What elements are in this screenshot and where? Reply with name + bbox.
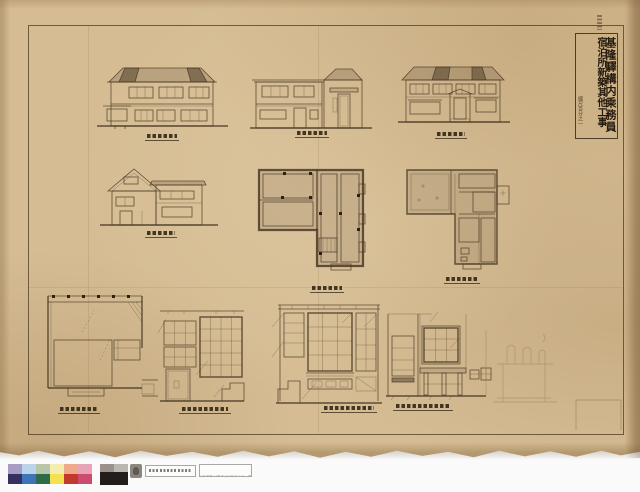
color-swatch [22, 474, 36, 484]
faint-rectangle-sketch [575, 398, 622, 430]
color-swatch [22, 464, 36, 474]
color-calibration-row-top [8, 464, 92, 474]
scanned-drawing-page: 基隆驛構内乘務員 宿泊所新築其他工事 縮尺百分之一 [0, 0, 640, 492]
second-floor-plan-drawing [403, 160, 517, 270]
interior-elevation-c-drawing [380, 308, 492, 406]
rear-elevation-drawing [398, 64, 510, 126]
caption-side-elevation [297, 131, 327, 135]
color-swatch [64, 464, 78, 474]
color-swatch [50, 464, 64, 474]
color-swatch [114, 464, 128, 472]
color-calibration-row-bottom [8, 474, 92, 484]
title-column-left: 宿泊所新築其他工事 [595, 37, 605, 136]
first-floor-plan-drawing [253, 164, 369, 272]
title-column-right: 基隆驛構内乘務員 [605, 37, 616, 136]
caption-second-floor-plan [446, 277, 478, 281]
front-elevation-drawing [95, 62, 230, 134]
color-swatch [50, 474, 64, 484]
pencil-furniture-sketch [483, 328, 563, 413]
side-elevation-drawing [250, 66, 372, 134]
caption-bath-detail [60, 407, 98, 411]
project-label-box: 基隆驛構内乘務員宿泊所新築其他工事 [199, 464, 252, 477]
gable-end-elevation-drawing [100, 165, 218, 229]
interior-elevation-b-drawing [272, 297, 386, 409]
black-calibration-swatch [100, 472, 128, 485]
caption-gable-elevation [147, 231, 175, 235]
archive-stamp-icon [130, 464, 142, 478]
reference-number-box [145, 465, 196, 477]
color-swatch [100, 464, 114, 472]
color-swatch [78, 474, 92, 484]
caption-interior-c [396, 404, 450, 408]
color-swatch [64, 474, 78, 484]
project-label-text: 基隆驛構内乘務員宿泊所新築其他工事 [200, 474, 251, 477]
color-swatch [36, 464, 50, 474]
paper-right-edge [626, 0, 640, 458]
reference-number-marks [149, 469, 192, 472]
caption-first-floor-plan [312, 286, 342, 290]
color-swatch [78, 464, 92, 474]
caption-interior-b [324, 406, 374, 410]
caption-rear-elevation [437, 132, 465, 136]
color-swatch [8, 464, 22, 474]
bath-detail-plan-drawing [42, 288, 160, 406]
caption-interior-a [182, 407, 228, 411]
classification-mark [597, 15, 602, 30]
interior-elevation-a-drawing [156, 305, 248, 408]
scale-note: 縮尺百分之一 [577, 96, 582, 126]
color-swatch [8, 474, 22, 484]
caption-front-elevation [147, 134, 177, 138]
color-swatch [36, 474, 50, 484]
gray-calibration-row [100, 464, 128, 472]
